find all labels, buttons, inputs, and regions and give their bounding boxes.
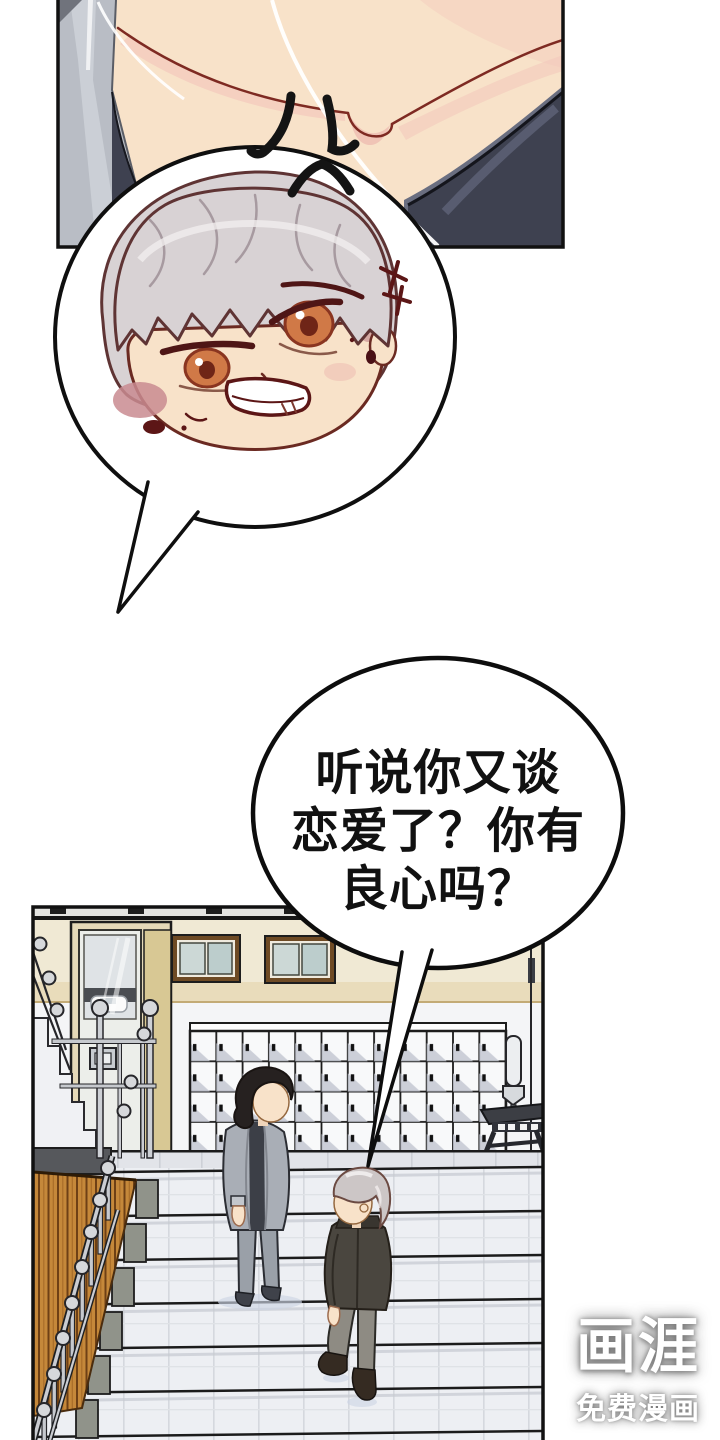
- earring: [366, 350, 376, 364]
- window: [172, 935, 240, 982]
- speech-line-1: 听说你又谈: [248, 744, 628, 802]
- window: [265, 936, 335, 983]
- comic-page: 听说你又谈 恋爱了？你有 良心吗？ 画涯 免费漫画: [0, 0, 720, 1440]
- speech-bubble-text: 听说你又谈 恋爱了？你有 良心吗？: [248, 744, 628, 918]
- bottom-panel-stairwell: [32, 907, 543, 1440]
- watermark-logo: 画涯: [558, 1316, 718, 1378]
- watermark-tagline: 免费漫画: [558, 1384, 718, 1428]
- gritted-teeth-mouth: [226, 379, 309, 415]
- site-watermark: 画涯 免费漫画: [558, 1316, 718, 1428]
- speech-line-3: 良心吗？: [248, 860, 628, 918]
- speech-line-2: 恋爱了？你有: [248, 802, 628, 860]
- comic-artwork: [0, 0, 720, 1440]
